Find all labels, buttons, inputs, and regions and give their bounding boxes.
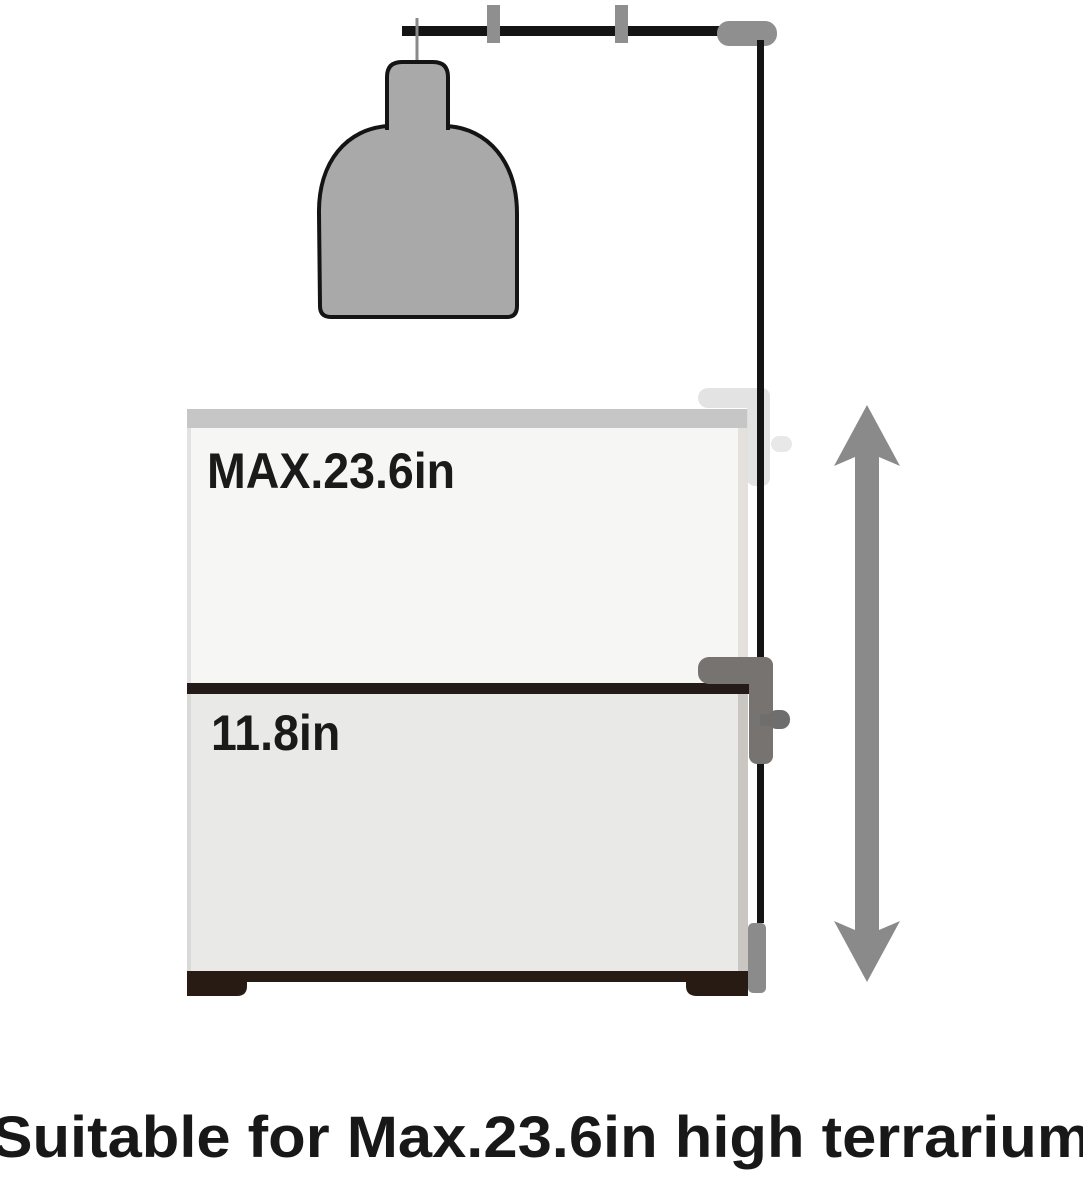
max-height-label: MAX.23.6in — [207, 442, 455, 500]
caption-text: Suitable for Max.23.6in high terrarium — [0, 1104, 1083, 1171]
base-height-label: 11.8in — [211, 704, 340, 762]
hanging-dome-lamp-icon — [319, 62, 517, 317]
pole-foot — [748, 923, 766, 993]
vertical-stand-pole-icon — [757, 40, 764, 923]
diagram-artwork — [0, 0, 1083, 1186]
product-diagram: MAX.23.6in 11.8in Suitable for Max.23.6i… — [0, 0, 1083, 1186]
overhead-stand-arm-icon — [402, 5, 777, 46]
vertical-double-arrow-icon — [834, 405, 900, 982]
